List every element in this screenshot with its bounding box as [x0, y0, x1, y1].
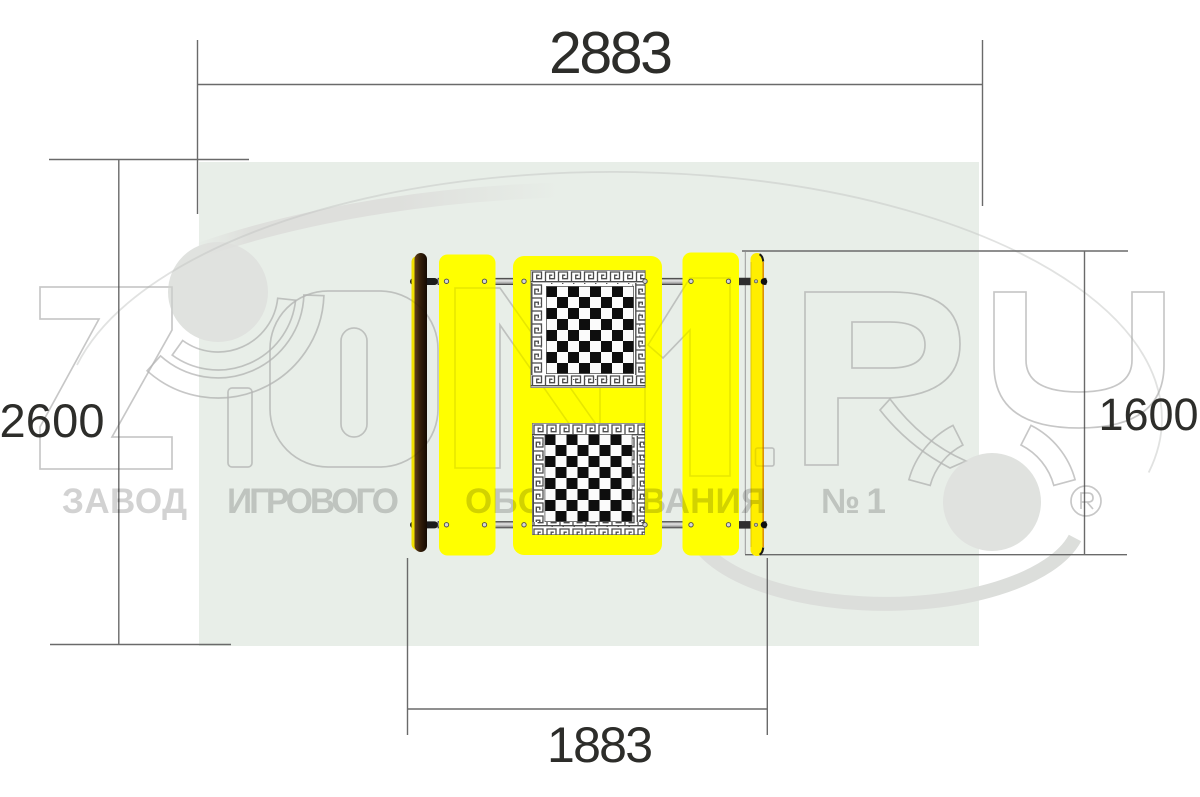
svg-text:2600: 2600 [0, 394, 105, 447]
svg-text:ЗАВОД: ЗАВОД [62, 482, 187, 521]
svg-text:1600: 1600 [1099, 389, 1199, 440]
svg-text:2883: 2883 [549, 20, 673, 86]
svg-text:ИГРОВОГО: ИГРОВОГО [227, 482, 399, 521]
svg-text:№1: №1 [821, 482, 886, 521]
svg-text:1883: 1883 [547, 717, 653, 773]
